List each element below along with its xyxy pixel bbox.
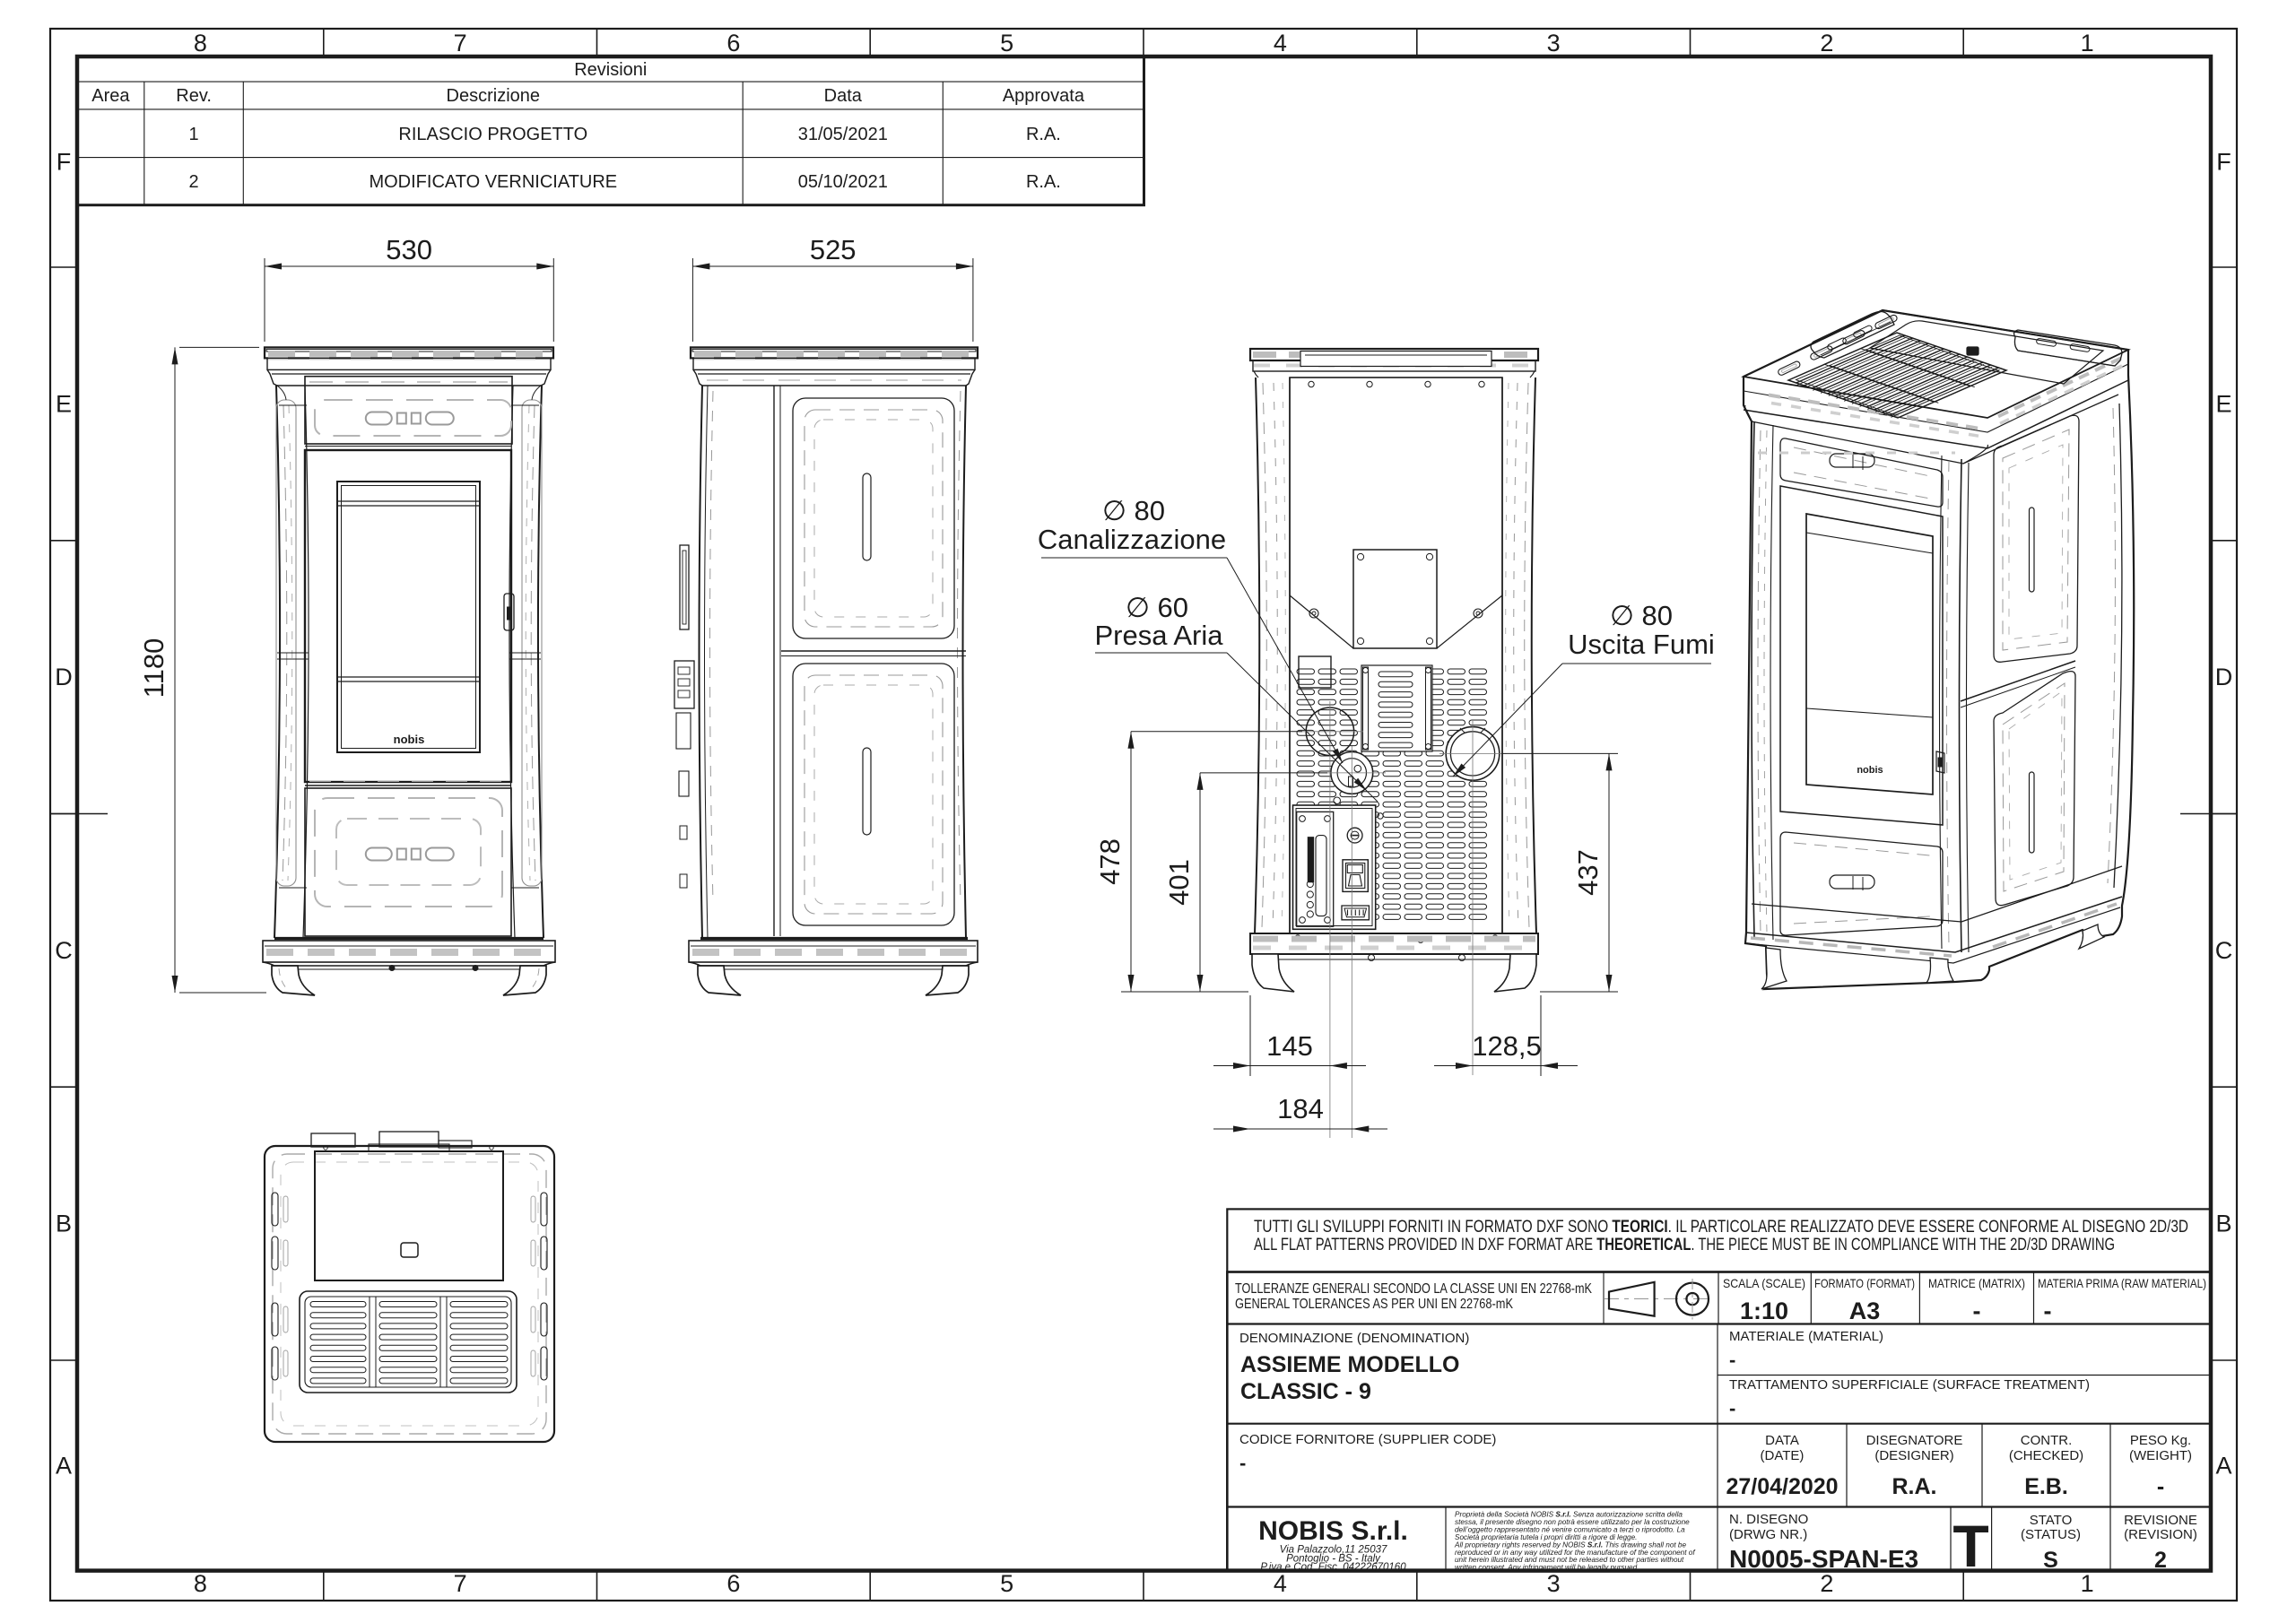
svg-text:2: 2: [2154, 1548, 2167, 1573]
svg-text:∅ 60: ∅ 60: [1126, 592, 1188, 623]
svg-text:B: B: [56, 1211, 72, 1237]
svg-text:6: 6: [726, 1570, 740, 1597]
svg-text:(REVISION): (REVISION): [2124, 1527, 2197, 1542]
svg-text:4: 4: [1274, 30, 1287, 56]
svg-text:ASSIEME MODELLO: ASSIEME MODELLO: [1240, 1352, 1459, 1377]
svg-text:C: C: [2215, 937, 2233, 964]
svg-text:CLASSIC - 9: CLASSIC - 9: [1240, 1379, 1371, 1404]
svg-text:R.A.: R.A.: [1026, 125, 1061, 144]
svg-text:REVISIONE: REVISIONE: [2124, 1513, 2197, 1528]
svg-text:E.B.: E.B.: [2024, 1474, 2068, 1499]
svg-text:Rev.: Rev.: [176, 86, 212, 106]
svg-text:1: 1: [2081, 1570, 2094, 1597]
svg-text:STATO: STATO: [2030, 1513, 2073, 1528]
svg-text:F: F: [2216, 149, 2231, 176]
svg-text:27/04/2020: 27/04/2020: [1726, 1474, 1838, 1499]
svg-text:nobis: nobis: [394, 733, 425, 746]
svg-text:F: F: [57, 149, 72, 176]
svg-text:-: -: [1729, 1397, 1735, 1419]
svg-text:nobis: nobis: [1857, 765, 1883, 776]
svg-text:R.A.: R.A.: [1892, 1474, 1937, 1499]
svg-text:7: 7: [454, 30, 467, 56]
svg-text:A: A: [56, 1452, 72, 1479]
svg-text:MATERIALE (MATERIAL): MATERIALE (MATERIAL): [1729, 1329, 1883, 1344]
svg-text:5: 5: [1000, 30, 1013, 56]
svg-text:4: 4: [1274, 1570, 1287, 1597]
svg-text:Uscita Fumi: Uscita Fumi: [1568, 629, 1715, 660]
svg-text:Canalizzazione: Canalizzazione: [1038, 524, 1226, 555]
svg-text:A: A: [2215, 1452, 2231, 1479]
svg-text:NOBIS S.r.l.: NOBIS S.r.l.: [1258, 1516, 1408, 1546]
svg-text:RILASCIO PROGETTO: RILASCIO PROGETTO: [398, 125, 587, 144]
svg-text:GENERAL TOLERANCES AS PER UNI: GENERAL TOLERANCES AS PER UNI EN 22768-m…: [1235, 1297, 1514, 1312]
svg-text:(DATE): (DATE): [1761, 1448, 1805, 1463]
svg-text:MATRICE (MATRIX): MATRICE (MATRIX): [1928, 1276, 2025, 1290]
svg-text:Presa Aria: Presa Aria: [1094, 620, 1223, 651]
svg-text:7: 7: [454, 1570, 467, 1597]
svg-text:31/05/2021: 31/05/2021: [798, 125, 888, 144]
svg-text:3: 3: [1547, 1570, 1561, 1597]
svg-text:Area: Area: [91, 86, 130, 106]
svg-text:3: 3: [1547, 30, 1561, 56]
svg-text:MODIFICATO VERNICIATURE: MODIFICATO VERNICIATURE: [369, 172, 617, 192]
svg-text:-: -: [1729, 1349, 1735, 1371]
svg-text:FORMATO (FORMAT): FORMATO (FORMAT): [1814, 1276, 1915, 1290]
svg-text:2: 2: [1820, 30, 1833, 56]
svg-text:DENOMINAZIONE (DENOMINATION): DENOMINAZIONE (DENOMINATION): [1239, 1331, 1469, 1346]
svg-text:E: E: [2215, 390, 2231, 417]
svg-text:8: 8: [194, 1570, 207, 1597]
svg-text:-: -: [2044, 1298, 2052, 1324]
svg-text:DATA: DATA: [1765, 1433, 1799, 1448]
svg-text:05/10/2021: 05/10/2021: [798, 172, 888, 192]
svg-text:CODICE FORNITORE (SUPPLIER: CODICE FORNITORE (SUPPLIER CODE): [1239, 1432, 1496, 1447]
svg-text:E: E: [56, 390, 72, 417]
svg-text:1180: 1180: [138, 638, 170, 699]
svg-text:1: 1: [189, 125, 199, 144]
svg-text:(STATUS): (STATUS): [2021, 1527, 2081, 1542]
svg-text:(DESIGNER): (DESIGNER): [1874, 1448, 1953, 1463]
svg-text:478: 478: [1094, 838, 1126, 885]
svg-text:Approvata: Approvata: [1003, 86, 1085, 106]
svg-text:DISEGNATORE: DISEGNATORE: [1866, 1433, 1963, 1448]
svg-text:N0005-SPAN-E3: N0005-SPAN-E3: [1729, 1545, 1918, 1573]
svg-text:128,5: 128,5: [1472, 1030, 1542, 1062]
svg-text:437: 437: [1572, 849, 1604, 896]
svg-text:T: T: [1952, 1513, 1988, 1579]
svg-text:ALL FLAT PATTERNS PROVIDED IN: ALL FLAT PATTERNS PROVIDED IN DXF FORMAT…: [1254, 1235, 2115, 1254]
svg-text:-: -: [2157, 1474, 2164, 1499]
svg-text:P.iva e Cod. Fisc. 04222670160: P.iva e Cod. Fisc. 04222670160: [1260, 1562, 1406, 1573]
svg-text:MATERIA PRIMA (RAW MATERIAL): MATERIA PRIMA (RAW MATERIAL): [2038, 1276, 2206, 1290]
svg-text:2: 2: [1820, 1570, 1833, 1597]
svg-text:TRATTAMENTO SUPERFICIALE (SURF: TRATTAMENTO SUPERFICIALE (SURFACE TREATM…: [1729, 1377, 2090, 1393]
svg-text:S: S: [2043, 1548, 2058, 1573]
svg-text:TOLLERANZE GENERALI SECONDO LA: TOLLERANZE GENERALI SECONDO LA CLASSE UN…: [1235, 1281, 1593, 1297]
svg-text:530: 530: [386, 234, 432, 265]
svg-text:written consent. Any infringem: written consent. Any infringement will b…: [1455, 1564, 1639, 1572]
svg-text:SCALA (SCALE): SCALA (SCALE): [1723, 1276, 1805, 1290]
svg-text:D: D: [55, 664, 73, 690]
svg-text:N. DISEGNO: N. DISEGNO: [1729, 1512, 1808, 1527]
svg-text:(CHECKED): (CHECKED): [2009, 1448, 2083, 1463]
svg-text:B: B: [2215, 1211, 2231, 1237]
svg-text:-: -: [1239, 1452, 1246, 1474]
svg-text:2: 2: [189, 172, 199, 192]
svg-text:184: 184: [1277, 1093, 1324, 1124]
svg-text:(WEIGHT): (WEIGHT): [2129, 1448, 2192, 1463]
svg-text:∅ 80: ∅ 80: [1102, 495, 1165, 526]
svg-text:Data: Data: [824, 86, 863, 106]
svg-text:5: 5: [1000, 1570, 1013, 1597]
svg-text:1: 1: [2081, 30, 2094, 56]
svg-text:-: -: [1973, 1298, 1981, 1324]
svg-text:TUTTI GLI SVILUPPI FORNITI IN: TUTTI GLI SVILUPPI FORNITI IN FORMATO DX…: [1254, 1217, 2188, 1237]
svg-text:PESO Kg.: PESO Kg.: [2130, 1433, 2191, 1448]
svg-text:(DRWG NR.): (DRWG NR.): [1729, 1527, 1807, 1542]
svg-text:D: D: [2215, 664, 2233, 690]
svg-text:CONTR.: CONTR.: [2021, 1433, 2073, 1448]
svg-text:Revisioni: Revisioni: [574, 60, 647, 80]
svg-text:401: 401: [1163, 859, 1195, 906]
svg-text:145: 145: [1266, 1030, 1313, 1062]
svg-text:C: C: [55, 937, 73, 964]
svg-text:A3: A3: [1849, 1298, 1881, 1324]
svg-text:8: 8: [194, 30, 207, 56]
svg-text:Descrizione: Descrizione: [447, 86, 540, 106]
svg-text:525: 525: [810, 234, 857, 265]
svg-text:6: 6: [726, 30, 740, 56]
svg-text:∅ 80: ∅ 80: [1610, 600, 1673, 631]
svg-text:R.A.: R.A.: [1026, 172, 1061, 192]
svg-text:1:10: 1:10: [1740, 1298, 1788, 1324]
